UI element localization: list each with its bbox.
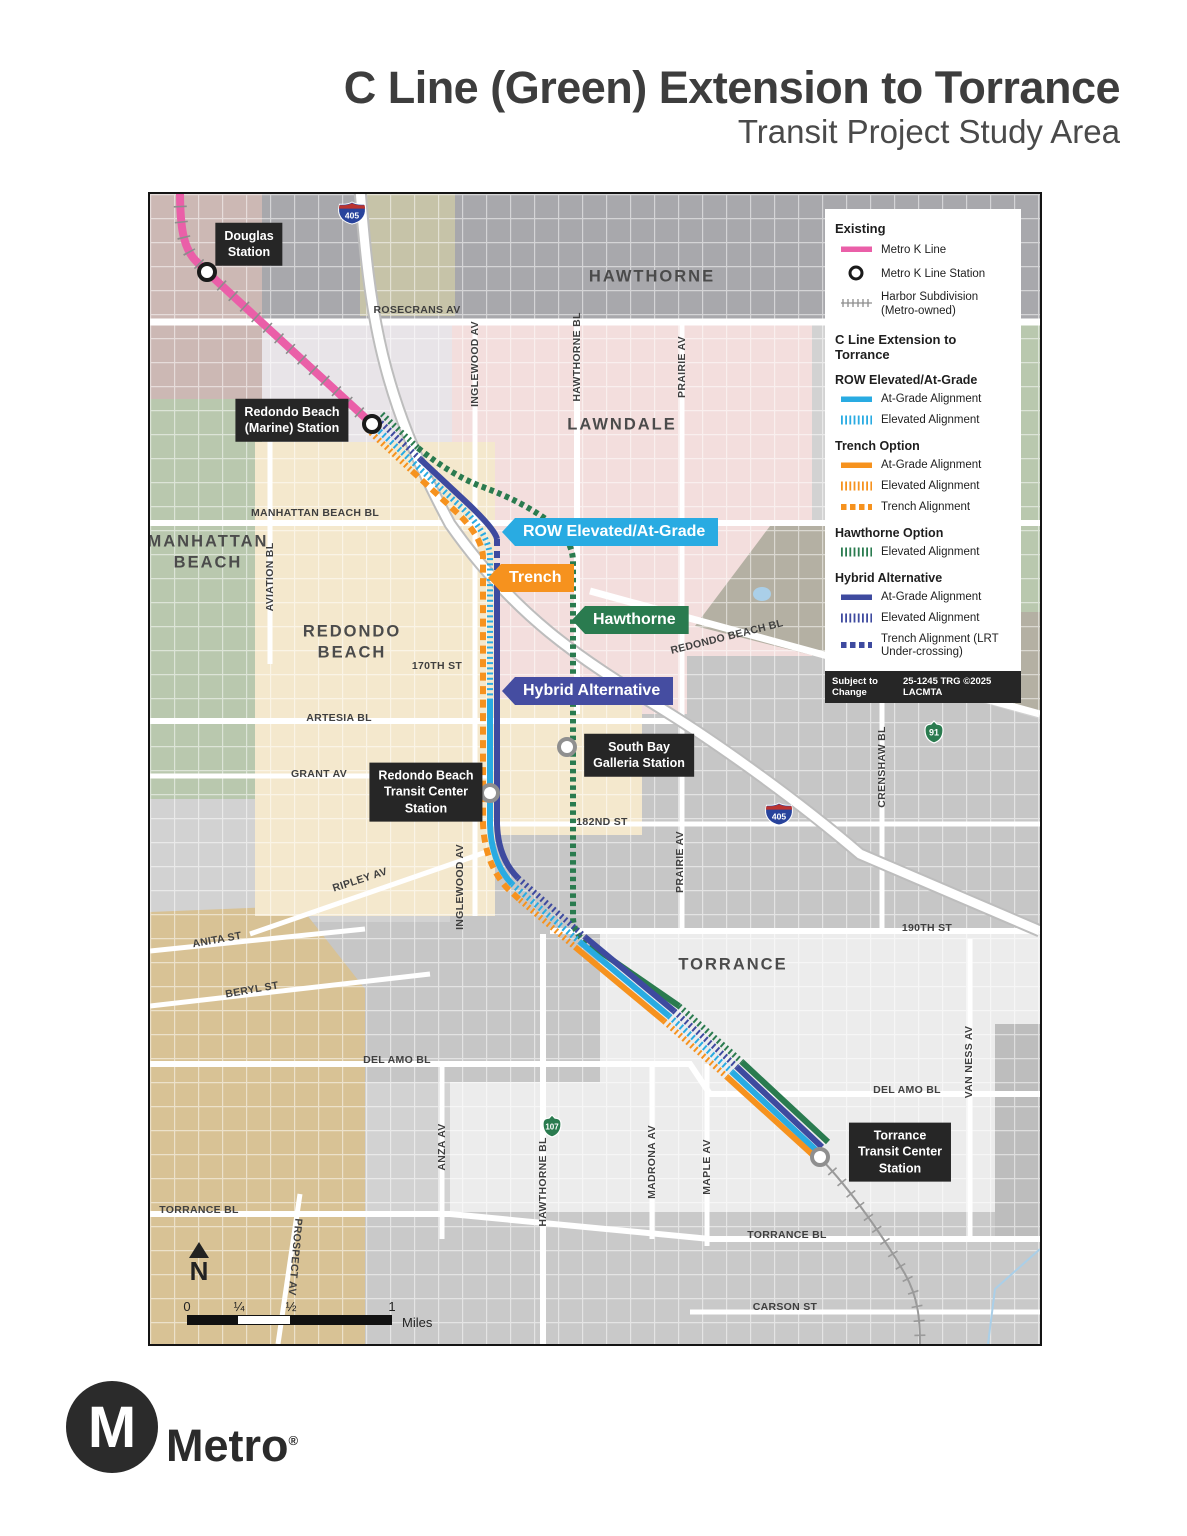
legend-item: Harbor Subdivision (Metro-owned) [825,288,1021,322]
city-label-redondo-beach: REDONDOBEACH [303,621,401,662]
legend-item: Trench Alignment [825,498,1021,519]
legend-item: Elevated Alignment [825,543,1021,564]
flag-row-elevated-at-grade: ROW Elevated/At-Grade [502,518,718,546]
city-label-hawthorne: HAWTHORNE [589,267,715,288]
street-label: ANZA AV [436,1123,448,1170]
legend-item: Elevated Alignment [825,411,1021,432]
street-label: MAPLE AV [701,1139,713,1194]
scale-tick: 1 [388,1299,395,1314]
legend-item: At-Grade Alignment [825,588,1021,609]
city-label-torrance: TORRANCE [678,955,787,976]
navy-ticks-swatch-icon [839,612,881,627]
city-label-manhattan-beach: MANHATTANBEACH [148,531,268,572]
legend-item: Metro K Line Station [825,261,1021,288]
metro-logo-icon: M [66,1381,158,1473]
street-label: 182ND ST [576,816,627,828]
street-label: 170TH ST [412,660,462,672]
station-dot-torrance-transit-center [810,1147,830,1167]
interstate-405-shield: 405 [337,201,367,225]
station-dot-rb-transit-center [480,783,500,803]
metro-wordmark: Metro® [166,1420,298,1472]
street-label: HAWTHORNE BL [537,1137,549,1226]
street-label: ROSECRANS AV [373,304,460,316]
station-label-redondo-marine: Redondo Beach(Marine) Station [235,399,348,442]
station-dot-south-bay-galleria [557,737,577,757]
registered-mark: ® [289,1433,299,1448]
interstate-405-shield: 405 [764,802,794,826]
legend-subheader-hybrid: Hybrid Alternative [825,564,1021,588]
scale-tick: ½ [286,1299,297,1314]
station-label-douglas: DouglasStation [215,223,282,266]
street-label: TORRANCE BL [159,1204,239,1216]
legend-item: Metro K Line [825,240,1021,261]
page-title: C Line (Green) Extension to Torrance [0,62,1120,114]
street-label: PRAIRIE AV [676,336,688,398]
green-ticks-swatch-icon [839,546,881,561]
station-label-south-bay-galleria: South BayGalleria Station [584,734,694,777]
north-arrow: N [183,1242,215,1284]
legend-subheader-row: ROW Elevated/At-Grade [825,366,1021,390]
blue-ticks-swatch-icon [839,414,881,429]
street-label: INGLEWOOD AV [469,321,481,407]
street-label: HAWTHORNE BL [571,312,583,401]
scale-unit: Miles [402,1315,432,1330]
orange-ticks-swatch-icon [839,480,881,495]
legend-header-existing: Existing [825,219,1021,240]
legend-subheader-trench: Trench Option [825,432,1021,456]
orange-solid-swatch-icon [839,459,881,474]
street-label: CRENSHAW BL [876,726,888,807]
study-area-map: 405 405 91 107 HAWTHORNE LAWNDALE MANHAT… [148,192,1042,1346]
scale-bar: 0 ¼ ½ 1 Miles [180,1299,480,1325]
scale-bar-graphic [187,1315,392,1325]
navy-solid-swatch-icon [839,591,881,606]
state-route-107-shield: 107 [541,1114,563,1138]
page-subtitle: Transit Project Study Area [0,113,1120,151]
scale-tick: ¼ [234,1299,245,1314]
poster-page: C Line (Green) Extension to Torrance Tra… [0,0,1187,1536]
station-dot-redondo-marine [362,414,382,434]
legend-footer: Subject to Change 25-1245 TRG ©2025 LACM… [825,671,1021,703]
legend-header-cline: C Line Extension to Torrance [825,322,1021,366]
navy-dash-swatch-icon [839,639,881,654]
subject-to-change: Subject to Change [832,676,903,698]
k-line-swatch-icon [839,243,881,258]
svg-text:91: 91 [929,728,939,738]
city-label-lawndale: LAWNDALE [567,415,677,436]
street-label: INGLEWOOD AV [454,844,466,930]
street-label: 190TH ST [902,922,952,934]
legend-subheader-hawthorne: Hawthorne Option [825,519,1021,543]
flag-trench: Trench [488,564,574,592]
street-label: DEL AMO BL [363,1054,431,1066]
legend-item: Trench Alignment (LRT Under-crossing) [825,630,1021,664]
harbor-subdivision-swatch-icon [839,296,881,313]
copyright: 25-1245 TRG ©2025 LACMTA [903,676,1014,698]
street-label: GRANT AV [291,768,347,780]
legend: Existing Metro K Line Metro K Line Stati… [825,209,1021,703]
street-label: TORRANCE BL [747,1229,827,1241]
legend-item: Elevated Alignment [825,477,1021,498]
flag-hawthorne: Hawthorne [572,606,689,634]
flag-hybrid-alternative: Hybrid Alternative [502,677,673,705]
station-dot-douglas [197,262,217,282]
legend-item: At-Grade Alignment [825,456,1021,477]
street-label: MADRONA AV [646,1125,658,1199]
legend-item: Elevated Alignment [825,609,1021,630]
legend-item: At-Grade Alignment [825,390,1021,411]
svg-text:405: 405 [772,812,786,822]
street-label: AVIATION BL [264,543,276,612]
street-label: DEL AMO BL [873,1084,941,1096]
blue-solid-swatch-icon [839,393,881,408]
svg-text:107: 107 [545,1123,559,1132]
street-label: CARSON ST [753,1301,818,1313]
street-label: PRAIRIE AV [674,831,686,893]
street-label: VAN NESS AV [963,1026,975,1099]
street-label: ARTESIA BL [306,712,372,724]
scale-tick: 0 [183,1299,190,1314]
station-label-rb-transit-center: Redondo BeachTransit CenterStation [369,763,482,822]
state-route-91-shield: 91 [923,720,945,744]
street-label: MANHATTAN BEACH BL [251,507,379,519]
svg-text:405: 405 [345,211,359,221]
station-circle-icon [839,264,881,285]
station-label-torrance-transit-center: TorranceTransit CenterStation [849,1123,951,1182]
orange-dash-swatch-icon [839,501,881,516]
